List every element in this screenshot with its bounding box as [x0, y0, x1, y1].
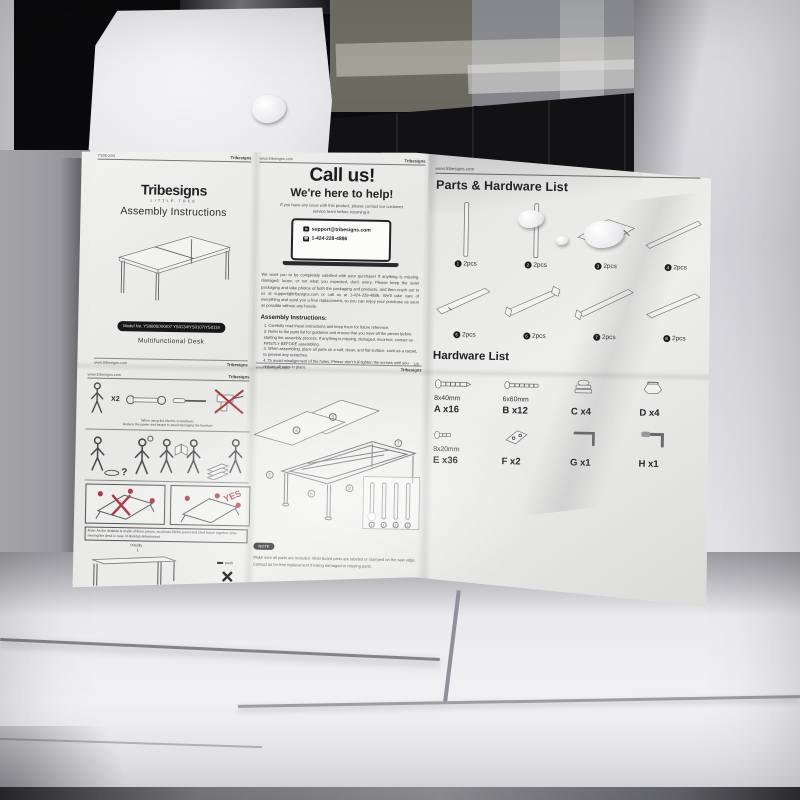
model-number-badge: Model No. YS0805/XK007 YS0134/YS0107/YS0…: [117, 321, 226, 333]
site-url: www.tribesigns.com: [259, 157, 293, 162]
assembly-instructions-heading: Assembly Instructions:: [261, 315, 327, 322]
page-code: YS05-X04: [98, 154, 115, 158]
wall-left-sliver: [0, 0, 14, 160]
laptop-screen: ✉ support@tribesigns.com ☎ 1-424-228-488…: [291, 218, 392, 262]
phone-icon: ☎: [303, 236, 309, 241]
instruction-sheet: YS05-X04 Tribesigns Tribesigns LITTLE TR…: [70, 145, 714, 609]
email-row: ✉ support@tribesigns.com: [303, 226, 389, 234]
email-icon: ✉: [303, 227, 309, 232]
masking-tape: [468, 59, 641, 94]
desk-illustration: [103, 224, 242, 305]
floor-edge: [0, 787, 800, 800]
satisfaction-paragraph: We want you to be completely satisfied w…: [261, 272, 420, 312]
page-header: YS05-X04 Tribesigns: [97, 153, 251, 163]
logo-subtitle: LITTLE TREE: [150, 198, 197, 203]
page-header: www.tribesigns.com Tribesigns: [259, 156, 425, 166]
call-us-title: Call us!: [309, 165, 375, 188]
product-name: Multifunctional Desk: [138, 337, 204, 345]
support-email: support@tribesigns.com: [312, 226, 371, 233]
photo-scene: YS05-X04 Tribesigns Tribesigns LITTLE TR…: [0, 0, 800, 800]
phone-row: ☎ 1-424-228-4886: [303, 236, 389, 244]
person-icon: [88, 381, 107, 415]
header-brand: Tribesigns: [405, 158, 426, 163]
masking-tape: [560, 0, 604, 100]
tribesigns-logo: Tribesigns: [141, 181, 207, 198]
styrofoam-block-top: [88, 6, 332, 164]
call-us-page: www.tribesigns.com Tribesigns Call us! W…: [253, 154, 429, 375]
laptop-graphic: ✉ support@tribesigns.com ☎ 1-424-228-488…: [291, 218, 392, 267]
support-phone: 1-424-228-4886: [312, 236, 348, 243]
laptop-base: [283, 261, 399, 268]
cover-page: YS05-X04 Tribesigns Tribesigns LITTLE TR…: [91, 151, 255, 370]
contact-note: If you have any issue with this product,…: [279, 202, 405, 216]
page-title: Assembly Instructions: [120, 205, 227, 219]
header-brand: Tribesigns: [231, 155, 252, 160]
wall-shadow: [634, 0, 724, 180]
call-us-subtitle: We're here to help!: [290, 187, 393, 201]
